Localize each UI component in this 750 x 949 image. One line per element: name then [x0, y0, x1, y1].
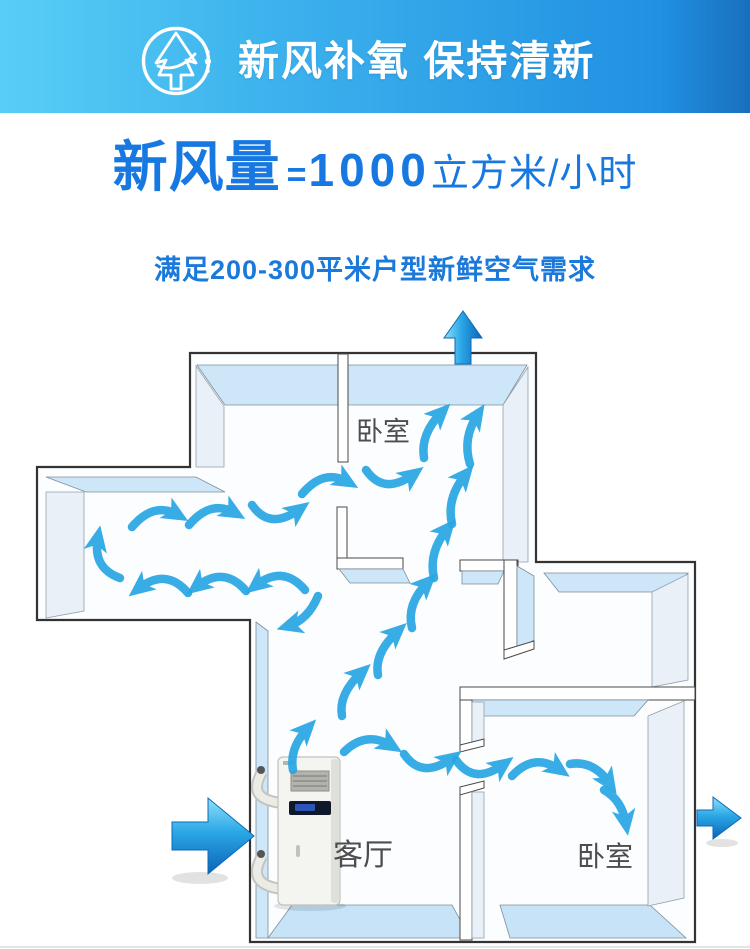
subtitle: 满足200-300平米户型新鲜空气需求 — [0, 248, 750, 287]
room-label-bedroom-top: 卧室 — [356, 417, 410, 447]
headline-equals: = — [287, 156, 307, 195]
room-label-bedroom-right: 卧室 — [577, 841, 633, 872]
room-label-living-room: 客厅 — [333, 839, 393, 872]
wind-tree-icon — [132, 14, 222, 104]
headline-value: 1000 — [308, 143, 430, 197]
right-exit-arrow-icon — [697, 797, 741, 839]
banner-title: 新风补氧 保持清新 — [238, 0, 595, 113]
headline-label: 新风量 — [113, 122, 281, 202]
header-banner: 新风补氧 保持清新 — [0, 0, 750, 113]
entry-arrow-icon — [172, 798, 254, 874]
page: 新风补氧 保持清新 新风量 = 1000 立方米/小时 满足200-300平米户… — [0, 0, 750, 949]
floorplan-diagram: 卧室 客厅 卧室 — [0, 300, 750, 949]
headline: 新风量 = 1000 立方米/小时 — [0, 122, 750, 202]
headline-unit: 立方米/小时 — [431, 142, 638, 197]
